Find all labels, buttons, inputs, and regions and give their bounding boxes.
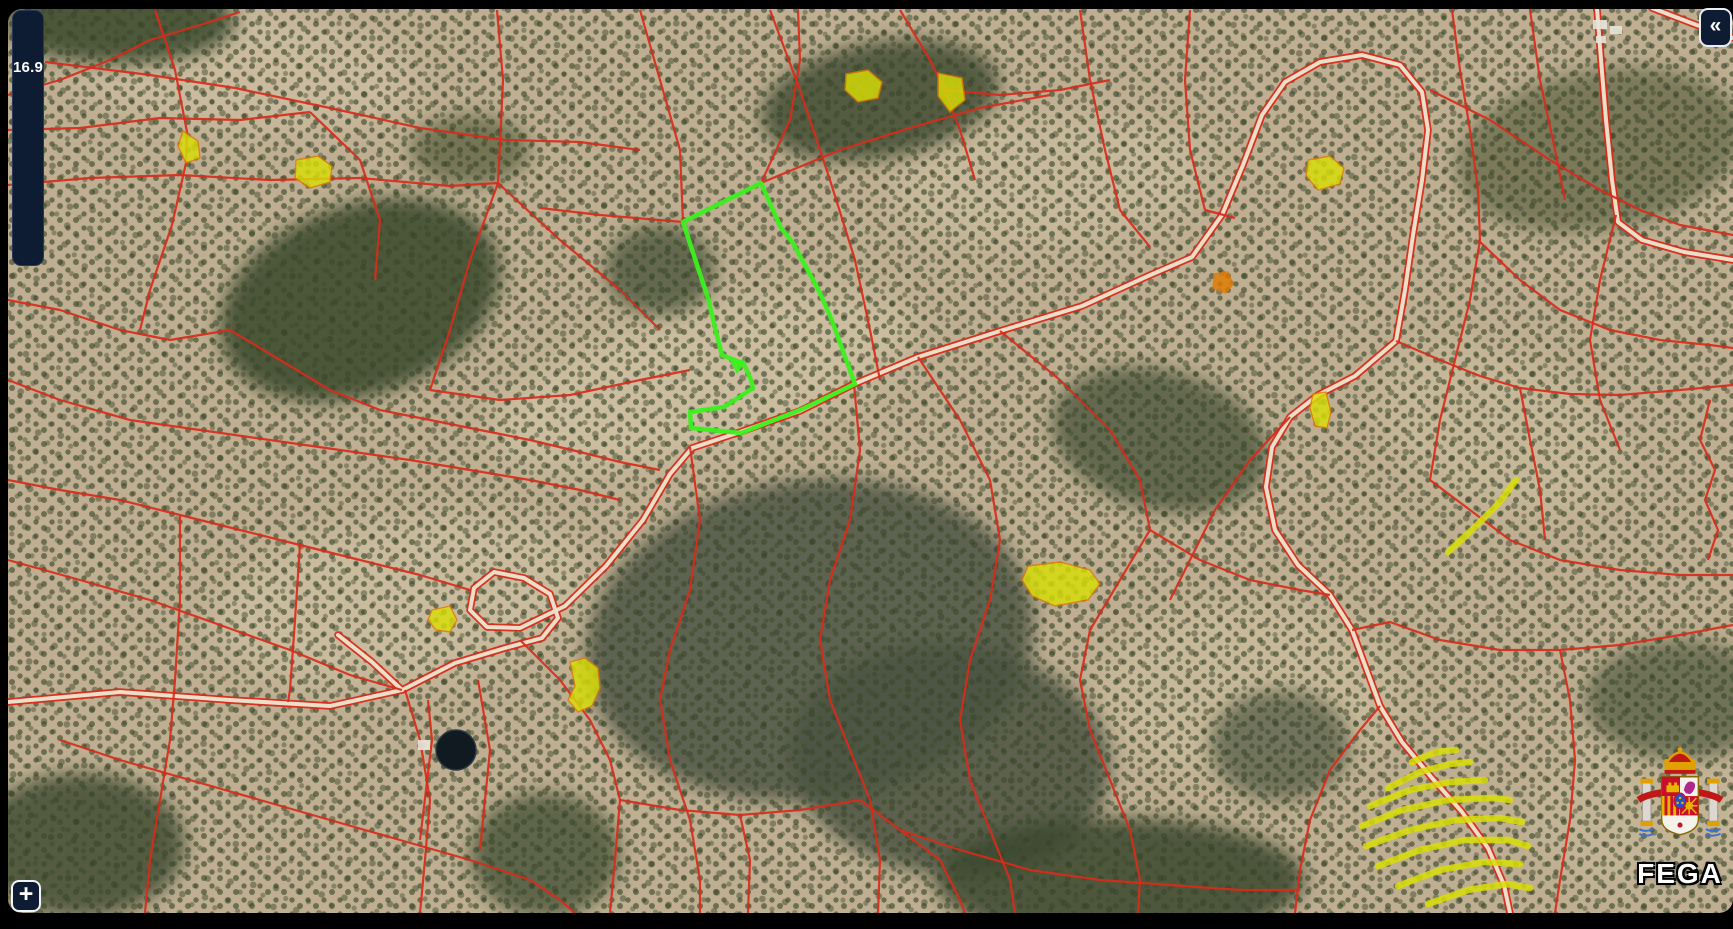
satellite-map-canvas[interactable] [0,0,1733,929]
building [1593,20,1607,29]
fega-logo-text: FEGA [1637,858,1723,890]
map-viewport [0,0,1733,929]
plus-icon: + [19,882,34,907]
spain-coat-of-arms-icon [1636,740,1724,856]
building [1596,36,1606,43]
building [418,740,430,750]
building [1610,26,1622,34]
zoom-level-value: 16.9 [13,59,43,76]
zoom-in-button[interactable]: + [11,880,41,912]
zoom-level-panel[interactable]: 16.9 [12,10,44,266]
pond [436,730,476,770]
map-layers [0,0,1733,929]
fega-logo: FEGA [1630,740,1730,892]
collapse-panel-button[interactable]: « [1699,8,1732,47]
chevron-double-left-icon: « [1710,14,1722,38]
